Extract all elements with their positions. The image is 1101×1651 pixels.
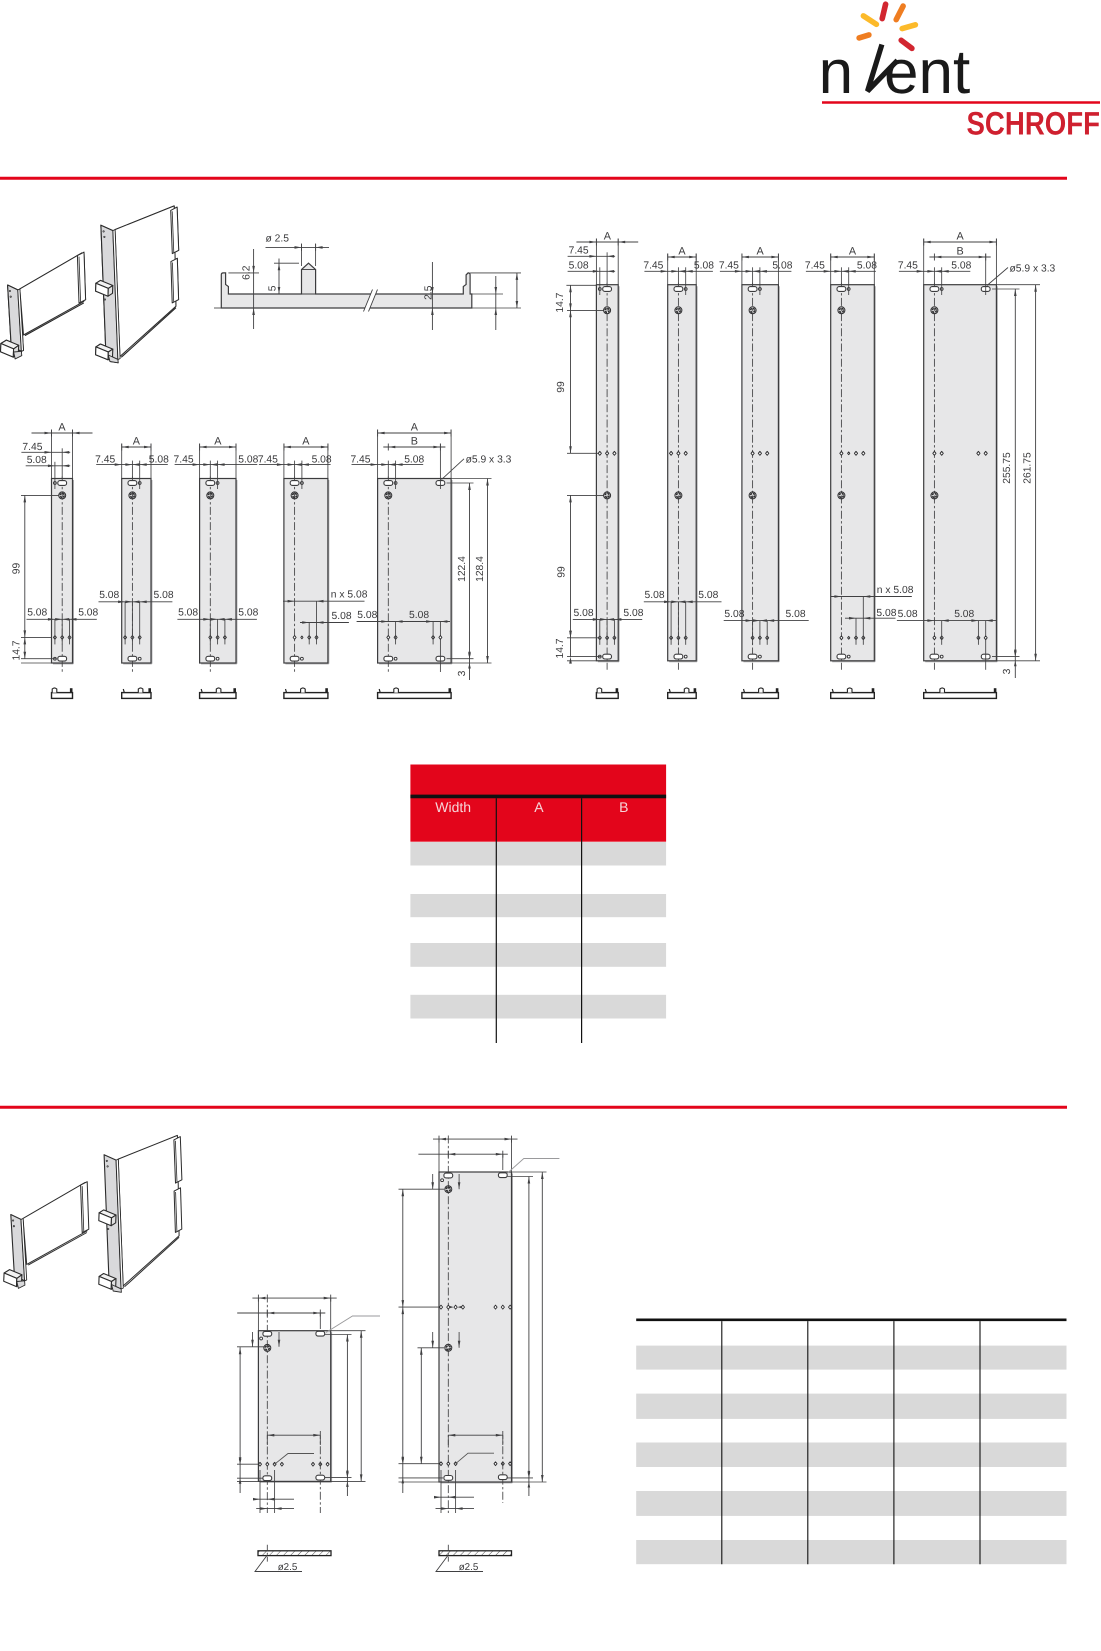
svg-text:SCHROFF: SCHROFF — [967, 106, 1101, 142]
svg-text:3: 3 — [457, 670, 468, 676]
svg-text:14.7: 14.7 — [555, 292, 566, 312]
svg-text:n x 5.08: n x 5.08 — [877, 585, 914, 596]
svg-text:ø2.5: ø2.5 — [278, 1562, 298, 1573]
svg-text:5.08: 5.08 — [898, 609, 918, 620]
svg-text:ø2.5: ø2.5 — [459, 1562, 479, 1573]
svg-text:5: 5 — [268, 285, 279, 291]
svg-text:A: A — [302, 436, 310, 448]
svg-text:5.08: 5.08 — [27, 455, 47, 466]
svg-text:7.45: 7.45 — [805, 260, 825, 271]
svg-text:128.4: 128.4 — [475, 556, 486, 582]
svg-text:A: A — [604, 231, 612, 243]
svg-text:A: A — [411, 422, 419, 434]
svg-text:ø5.9 x 3.3: ø5.9 x 3.3 — [466, 455, 512, 466]
svg-text:5.08: 5.08 — [694, 260, 714, 271]
svg-text:5.08: 5.08 — [178, 608, 198, 619]
svg-text:n x 5.08: n x 5.08 — [331, 590, 368, 601]
svg-text:A: A — [133, 436, 141, 448]
svg-text:99: 99 — [556, 381, 567, 393]
svg-text:7.45: 7.45 — [174, 455, 194, 466]
svg-text:n: n — [819, 38, 853, 107]
svg-text:3: 3 — [1002, 668, 1013, 674]
svg-text:ent: ent — [884, 38, 970, 107]
svg-text:5.08: 5.08 — [623, 608, 643, 619]
svg-text:261.75: 261.75 — [1022, 452, 1033, 484]
svg-text:5.08: 5.08 — [876, 608, 896, 619]
svg-text:5.08: 5.08 — [698, 590, 718, 601]
svg-text:5.08: 5.08 — [404, 455, 424, 466]
svg-text:5.08: 5.08 — [409, 610, 429, 621]
svg-text:5.08: 5.08 — [786, 609, 806, 620]
svg-text:14.7: 14.7 — [12, 640, 23, 660]
svg-text:5.08: 5.08 — [149, 455, 169, 466]
svg-text:14.7: 14.7 — [555, 638, 566, 658]
svg-text:A: A — [956, 231, 964, 243]
svg-text:ø5.9 x 3.3: ø5.9 x 3.3 — [1010, 264, 1056, 275]
svg-text:A: A — [58, 422, 66, 434]
svg-text:7.45: 7.45 — [569, 245, 589, 256]
svg-text:7.45: 7.45 — [258, 455, 278, 466]
svg-text:99: 99 — [12, 563, 23, 575]
svg-text:5.08: 5.08 — [357, 610, 377, 621]
svg-text:7.45: 7.45 — [22, 442, 42, 453]
svg-text:5.08: 5.08 — [857, 260, 877, 271]
svg-text:B: B — [619, 799, 628, 815]
svg-text:5.08: 5.08 — [332, 611, 352, 622]
svg-text:A: A — [849, 246, 857, 258]
svg-text:5.08: 5.08 — [99, 590, 119, 601]
svg-text:5.08: 5.08 — [154, 590, 174, 601]
svg-text:A: A — [756, 246, 764, 258]
svg-text:B: B — [411, 436, 418, 448]
svg-text:5.08: 5.08 — [312, 455, 332, 466]
svg-text:5.08: 5.08 — [574, 608, 594, 619]
svg-text:ø 2.5: ø 2.5 — [266, 234, 290, 245]
svg-text:5.08: 5.08 — [724, 609, 744, 620]
svg-text:255.75: 255.75 — [1002, 452, 1013, 484]
svg-text:7.45: 7.45 — [95, 455, 115, 466]
svg-text:122.4: 122.4 — [457, 556, 468, 582]
svg-text:5.08: 5.08 — [238, 608, 258, 619]
svg-text:7.45: 7.45 — [643, 260, 663, 271]
svg-text:5.08: 5.08 — [645, 590, 665, 601]
svg-text:A: A — [534, 799, 544, 815]
svg-text:5.08: 5.08 — [954, 609, 974, 620]
svg-text:5.08: 5.08 — [78, 608, 98, 619]
svg-text:B: B — [956, 246, 963, 258]
svg-text:A: A — [214, 436, 222, 448]
svg-text:7.45: 7.45 — [350, 455, 370, 466]
svg-text:5.08: 5.08 — [27, 608, 47, 619]
svg-text:5.08: 5.08 — [951, 260, 971, 271]
svg-text:A: A — [678, 246, 686, 258]
svg-text:99: 99 — [557, 566, 568, 578]
svg-text:7.45: 7.45 — [719, 260, 739, 271]
svg-text:5.08: 5.08 — [238, 455, 258, 466]
svg-text:5.08: 5.08 — [569, 260, 589, 271]
svg-text:5.08: 5.08 — [772, 260, 792, 271]
svg-text:Width: Width — [435, 799, 471, 815]
svg-text:7.45: 7.45 — [898, 260, 918, 271]
